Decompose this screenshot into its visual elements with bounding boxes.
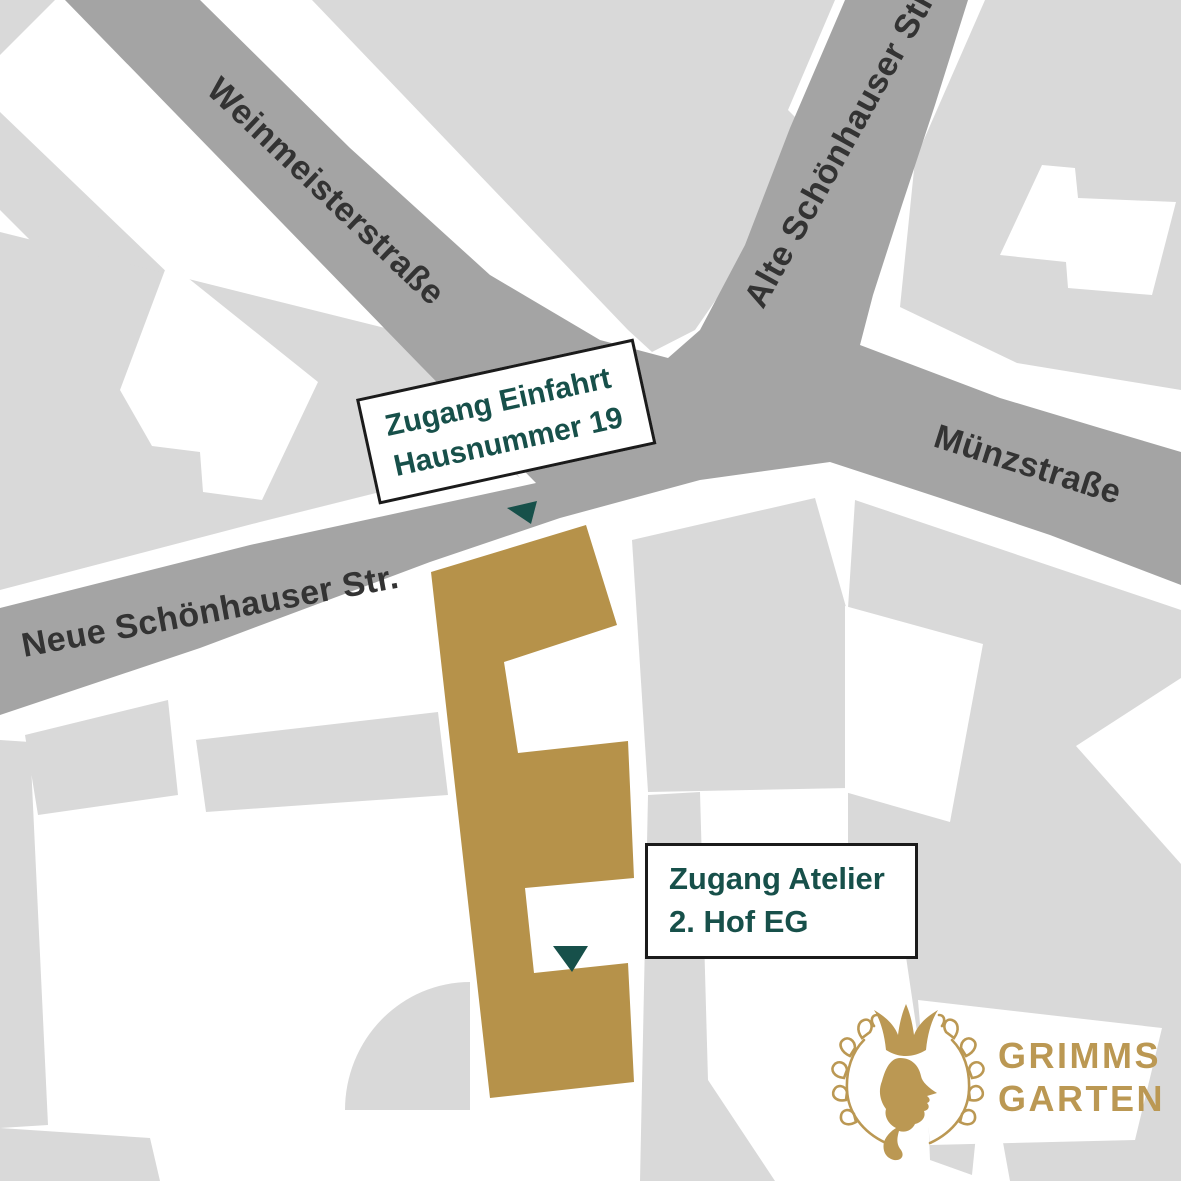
block-neue-south-strip-a [25, 700, 178, 815]
logo-bud-left [872, 1015, 877, 1026]
logo-wordmark-line1: GRIMMS [998, 1038, 1165, 1074]
map-svg: Weinmeisterstraße Alte Schönhauser Str. … [0, 0, 1181, 1181]
logo-wordmark-line2: GARTEN [998, 1081, 1165, 1117]
block-neue-south-strip-b [196, 712, 448, 812]
block-top-left-corner [0, 0, 55, 55]
atelier-line2: 2. Hof EG [669, 901, 915, 944]
logo-leaf-2 [841, 1038, 855, 1056]
logo-leaf-5 [841, 1110, 856, 1124]
logo-leaf-3 [832, 1062, 847, 1078]
block-bottom-left-corner [0, 1128, 160, 1181]
logo-leaf-4 [833, 1086, 847, 1100]
annotation-box-atelier: Zugang Atelier 2. Hof EG [645, 843, 918, 959]
atelier-line1: Zugang Atelier [669, 858, 915, 901]
map-canvas: Weinmeisterstraße Alte Schönhauser Str. … [0, 0, 1181, 1181]
logo-wordmark: GRIMMS GARTEN [998, 1038, 1165, 1124]
block-center-right [632, 498, 848, 792]
logo-leaf-1 [858, 1020, 871, 1038]
block-quarter-circle-fan [345, 982, 470, 1110]
